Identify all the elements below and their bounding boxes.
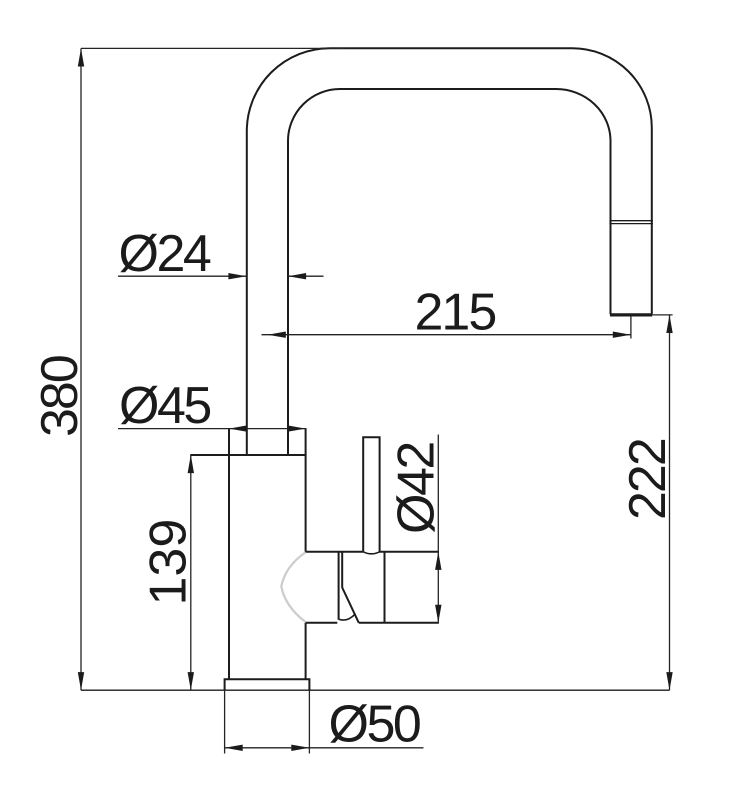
svg-text:380: 380 <box>31 356 89 437</box>
svg-text:Ø50: Ø50 <box>329 695 420 753</box>
svg-text:222: 222 <box>619 439 677 520</box>
svg-text:Ø45: Ø45 <box>119 377 210 435</box>
svg-text:Ø24: Ø24 <box>119 225 211 283</box>
svg-text:Ø42: Ø42 <box>388 443 446 534</box>
svg-text:215: 215 <box>415 284 496 342</box>
svg-text:139: 139 <box>140 519 198 606</box>
